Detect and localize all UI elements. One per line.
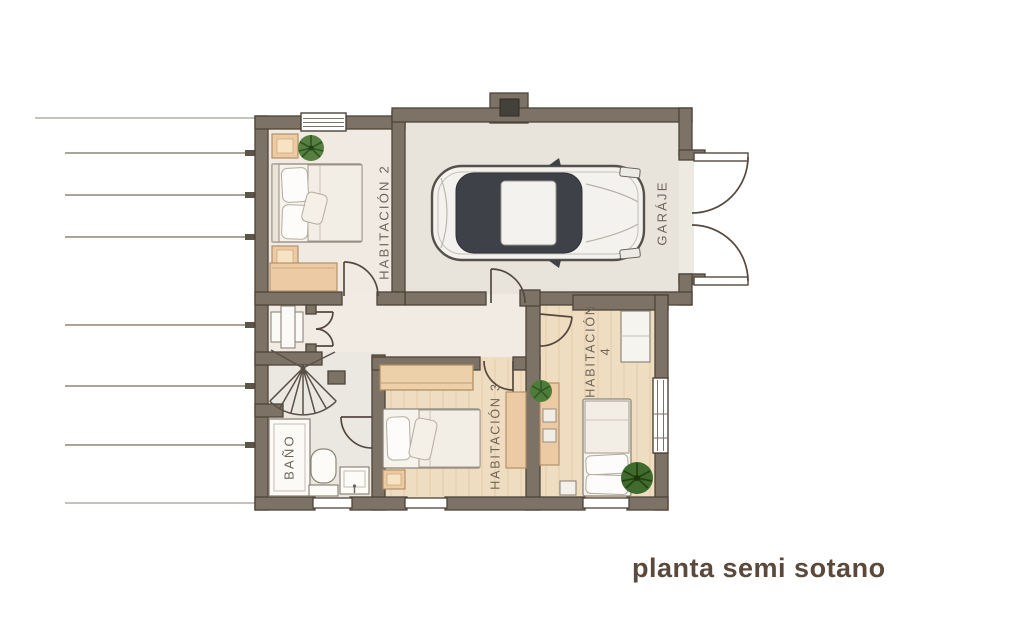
wall-hab4-right-top (655, 295, 668, 380)
vestibule-jamb-top (306, 305, 316, 314)
window-hab4-right (653, 378, 668, 453)
wall-bottom-4 (627, 497, 668, 510)
desk (506, 392, 526, 468)
car-roof (501, 181, 556, 245)
plant-icon (530, 380, 552, 402)
wall-divider-hab2-garage (392, 112, 405, 292)
headlight (620, 248, 641, 259)
sink (340, 467, 369, 494)
toilet (309, 449, 338, 496)
room-label-habitacion-3: HABITACIÓN 3 (487, 382, 502, 490)
room-label-bano: BAÑO (281, 434, 296, 480)
wall-top-garage (392, 108, 692, 122)
wall-bottom-hab2-left (255, 292, 342, 305)
dresser (270, 263, 337, 291)
window-bottom-hab4 (583, 498, 629, 508)
room-label-garaje: GARÁJE (654, 180, 669, 245)
wall-bottom-hab2-right (377, 292, 405, 305)
plant-icon (298, 135, 324, 161)
window-bottom-bano (313, 498, 352, 508)
elevation-tick-lines (35, 118, 255, 503)
window-hab2-top (301, 113, 346, 131)
plan-title: planta semi sotano (632, 553, 886, 583)
window-bottom-hab3 (405, 498, 447, 508)
hall-pillar (328, 371, 345, 384)
wardrobe (621, 311, 650, 362)
headlight (620, 167, 641, 178)
room-label-habitacion-4-number: 4 (598, 347, 612, 356)
garage-door-threshold (679, 158, 694, 276)
wall-bottom-1 (255, 497, 315, 510)
wall-bottom-3 (445, 497, 585, 510)
room-label-habitacion-4: HABITACIÓN (582, 304, 597, 397)
double-bed (272, 164, 362, 242)
wall-top-hab2-left (255, 116, 303, 129)
wall-bottom-garage-left (405, 292, 486, 305)
nightstand (560, 481, 576, 495)
room-label-habitacion-2: HABITACIÓN 2 (376, 164, 391, 280)
wall-left (255, 116, 268, 510)
wall-bano-stub (255, 404, 283, 417)
nightstand (383, 470, 405, 489)
vestibule-closet (271, 306, 303, 348)
nightstand (272, 134, 298, 158)
plant-icon (621, 462, 653, 494)
car (432, 158, 644, 268)
wardrobe (380, 365, 473, 390)
tick-end-nubs (245, 150, 255, 448)
wall-divider-hab3-hab4 (526, 303, 540, 510)
chimney-flue (500, 99, 519, 116)
wall-right-garage-top (679, 108, 692, 156)
garage-entrance-double-door (692, 153, 748, 285)
wall-bottom-2 (350, 497, 407, 510)
floor-plan-page: HABITACIÓN 2 GARÁJE HABITACIÓN 3 HABITAC… (0, 0, 1024, 643)
double-bed (383, 409, 480, 468)
floor-plan-drawing: HABITACIÓN 2 GARÁJE HABITACIÓN 3 HABITAC… (0, 0, 1024, 643)
